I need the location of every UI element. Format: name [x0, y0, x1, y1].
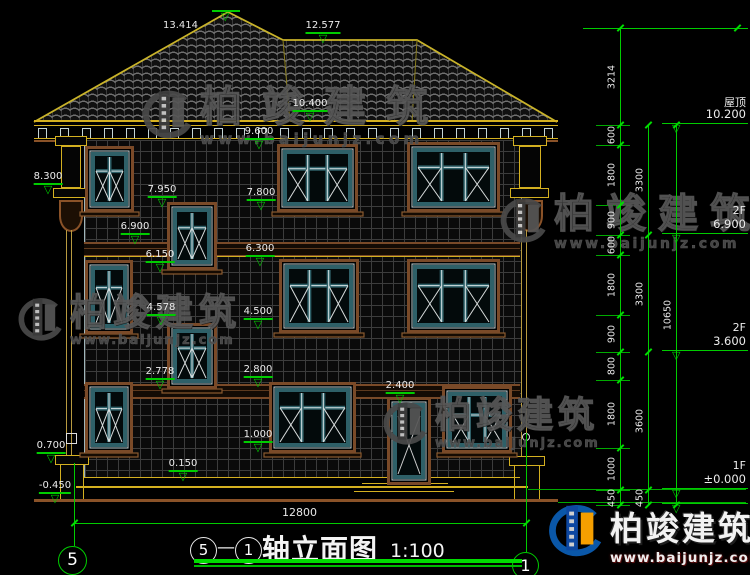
elevation-triangle-icon: ▽: [221, 12, 229, 21]
gray-watermark-text: 柏竣建筑www.baijunjz.com: [435, 398, 600, 451]
dimension-value: 1000: [607, 457, 618, 481]
brand-logo: [546, 500, 604, 568]
elevation-triangle-icon: ▽: [244, 443, 273, 452]
dimension-chain-line: [676, 125, 677, 505]
elevation-marker: 4.500▽: [244, 307, 273, 329]
elevation-label: 2.400: [386, 381, 415, 391]
drawing-title-block: 5—1轴立面图1:100: [190, 528, 445, 568]
right-pilaster-shaft: [519, 146, 541, 188]
elevation-label: 8.300: [34, 172, 63, 182]
gray-watermark: 柏竣建筑www.baijunjz.com: [381, 398, 600, 451]
dimension-extension: [596, 255, 630, 256]
dimension-extension: [596, 380, 630, 381]
elevation-marker: 4.578▽: [147, 303, 176, 325]
elevation-label: 6.150: [146, 250, 175, 260]
level-triangle-icon: ▽: [672, 351, 680, 360]
gray-watermark-brand: 柏竣建筑: [435, 398, 600, 434]
dimension-extension: [596, 352, 630, 353]
elevation-label: 0.700: [37, 441, 66, 451]
elevation-triangle-icon: ▽: [146, 263, 175, 272]
window-2f-mid: [279, 259, 359, 333]
dimension-value: 900: [607, 211, 618, 229]
level-name: 2F: [660, 204, 746, 217]
watermark-logo: [381, 398, 429, 451]
elevation-triangle-icon: ▽: [244, 378, 273, 387]
top-extension-line: [583, 28, 748, 29]
elevation-triangle-icon: ▽: [37, 454, 66, 463]
level-name: 2F: [660, 321, 746, 334]
elevation-label: 10.400: [293, 99, 328, 109]
gray-watermark-url: www.baijunjz.com: [200, 130, 448, 148]
level-value: ±0.000: [660, 472, 746, 486]
elevation-triangle-icon: ▽: [247, 201, 276, 210]
elevation-label: 12.577: [306, 21, 341, 31]
level-name: 屋顶: [660, 94, 746, 110]
brand-name: 柏竣建筑: [610, 502, 750, 550]
elevation-triangle-icon: ▽: [246, 257, 275, 266]
elevation-marker: 1.000▽: [244, 430, 273, 452]
watermark-logo: [16, 294, 64, 347]
elevation-label: -0.450: [39, 481, 71, 491]
left-pilaster-shaft: [61, 146, 81, 188]
dimension-value: 600: [607, 236, 618, 254]
elevation-label: 2.800: [244, 365, 273, 375]
dimension-value: 3600: [635, 409, 646, 433]
dimension-extension: [596, 315, 630, 316]
elevation-marker: 2.400▽: [386, 381, 415, 403]
ground-line: [34, 499, 558, 502]
dimension-value: 3300: [635, 168, 646, 192]
window-1f-mid: [269, 382, 356, 453]
elevation-triangle-icon: ▽: [39, 494, 71, 503]
title-underline-1: [194, 559, 522, 563]
dimension-chain-line: [648, 125, 649, 505]
elevation-label: 0.150: [169, 459, 198, 469]
level-value: 6.900: [660, 217, 746, 231]
elevation-label: 6.300: [246, 244, 275, 254]
elevation-triangle-icon: ▽: [306, 34, 341, 43]
elevation-triangle-icon: ▽: [386, 394, 415, 403]
title-dash: —: [217, 537, 235, 558]
watermark-logo: [546, 500, 604, 564]
plinth-top-line: [84, 477, 520, 478]
dimension-value: 1800: [607, 273, 618, 297]
dimension-extension: [596, 145, 630, 146]
elevation-marker: 2.800▽: [244, 365, 273, 387]
window-3f-mid: [277, 144, 358, 212]
right-pilaster-cap: [513, 136, 547, 146]
elevation-marker: 8.300▽: [34, 172, 63, 194]
elevation-label: 4.578: [147, 303, 176, 313]
elevation-label: 7.950: [148, 185, 177, 195]
dimension-value: 3300: [635, 281, 646, 305]
dimension-chain-line: [620, 28, 621, 505]
elevation-triangle-icon: ▽: [245, 140, 274, 149]
elevation-label: 2.778: [146, 367, 175, 377]
elevation-drawing: 柏竣建筑www.baijunjz.com柏竣建筑www.baijunjz.com…: [0, 0, 750, 575]
axis-line: [526, 433, 527, 552]
elevation-marker: 6.900▽: [121, 222, 150, 244]
window-1f-left: [85, 382, 133, 453]
elevation-triangle-icon: ▽: [121, 235, 150, 244]
level-name: 1F: [660, 459, 746, 472]
axis-line: [74, 463, 75, 546]
axis-bubble: 1: [512, 552, 539, 575]
plinth-step-line: [76, 486, 528, 488]
elevation-label: 4.500: [244, 307, 273, 317]
window-2f-right: [407, 259, 500, 333]
axis-bubble: 5: [58, 546, 87, 575]
left-pilaster-cap: [55, 136, 87, 146]
elevation-label: 9.600: [245, 127, 274, 137]
left-grid-node: [66, 433, 77, 444]
elevation-marker: 0.150▽: [169, 459, 198, 481]
elevation-marker: 7.950▽: [148, 185, 177, 207]
gray-watermark-url: www.baijunjz.com: [554, 236, 750, 252]
elevation-label: 1.000: [244, 430, 273, 440]
elevation-marker: 0.700▽: [37, 441, 66, 463]
dimension-value: 1800: [607, 402, 618, 426]
elevation-marker: -0.450▽: [39, 481, 71, 503]
title-underline-2: [194, 565, 522, 567]
elevation-triangle-icon: ▽: [147, 316, 176, 325]
door-step-2: [354, 491, 454, 492]
elevation-triangle-icon: ▽: [244, 320, 273, 329]
window-3f-left: [85, 146, 134, 212]
level-triangle-icon: ▽: [672, 124, 680, 133]
overall-width-dimension-line: [74, 523, 526, 524]
elevation-marker: 6.150▽: [146, 250, 175, 272]
gray-watermark-url: www.baijunjz.com: [70, 333, 242, 348]
watermark-logo: [140, 86, 194, 145]
elevation-label: 6.900: [121, 222, 150, 232]
dimension-value: 800: [607, 357, 618, 375]
elevation-marker: 7.800▽: [247, 188, 276, 210]
window-3f-stair: [167, 202, 217, 270]
elevation-label: 7.800: [247, 188, 276, 198]
overall-width-value: 12800: [282, 506, 317, 519]
elevation-marker: 9.600▽: [245, 127, 274, 149]
dimension-value: 3214: [607, 64, 618, 88]
elevation-marker: 12.577▽: [306, 21, 341, 43]
dimension-value: 1800: [607, 163, 618, 187]
level-triangle-icon: ▽: [672, 234, 680, 243]
level-triangle-icon: ▽: [672, 489, 680, 498]
elevation-triangle-icon: ▽: [169, 472, 198, 481]
gray-watermark-url: www.baijunjz.com: [435, 436, 600, 451]
elevation-marker: 2.778▽: [146, 367, 175, 389]
elevation-marker: 10.400▽: [293, 99, 328, 121]
elevation-triangle-icon: ▽: [148, 198, 177, 207]
gray-watermark: 柏竣建筑www.baijunjz.com: [16, 294, 242, 348]
brand-footer: 柏竣建筑 www.baijunjz.com: [546, 500, 750, 568]
elevation-triangle-icon: ▽: [293, 112, 328, 121]
elevation-triangle-icon: ▽: [34, 185, 63, 194]
dimension-extension: [596, 448, 630, 449]
dimension-value: 900: [607, 324, 618, 342]
level-value: 3.600: [660, 334, 746, 348]
right-pedestal: [514, 465, 540, 501]
window-3f-right: [407, 142, 500, 212]
watermark-logo: [498, 194, 548, 249]
elevation-label: 13.414: [163, 20, 198, 31]
brand-url: www.baijunjz.com: [610, 550, 750, 566]
elevation-triangle-icon: ▽: [146, 380, 175, 389]
dimension-value: 600: [607, 126, 618, 144]
elevation-marker: 6.300▽: [246, 244, 275, 266]
